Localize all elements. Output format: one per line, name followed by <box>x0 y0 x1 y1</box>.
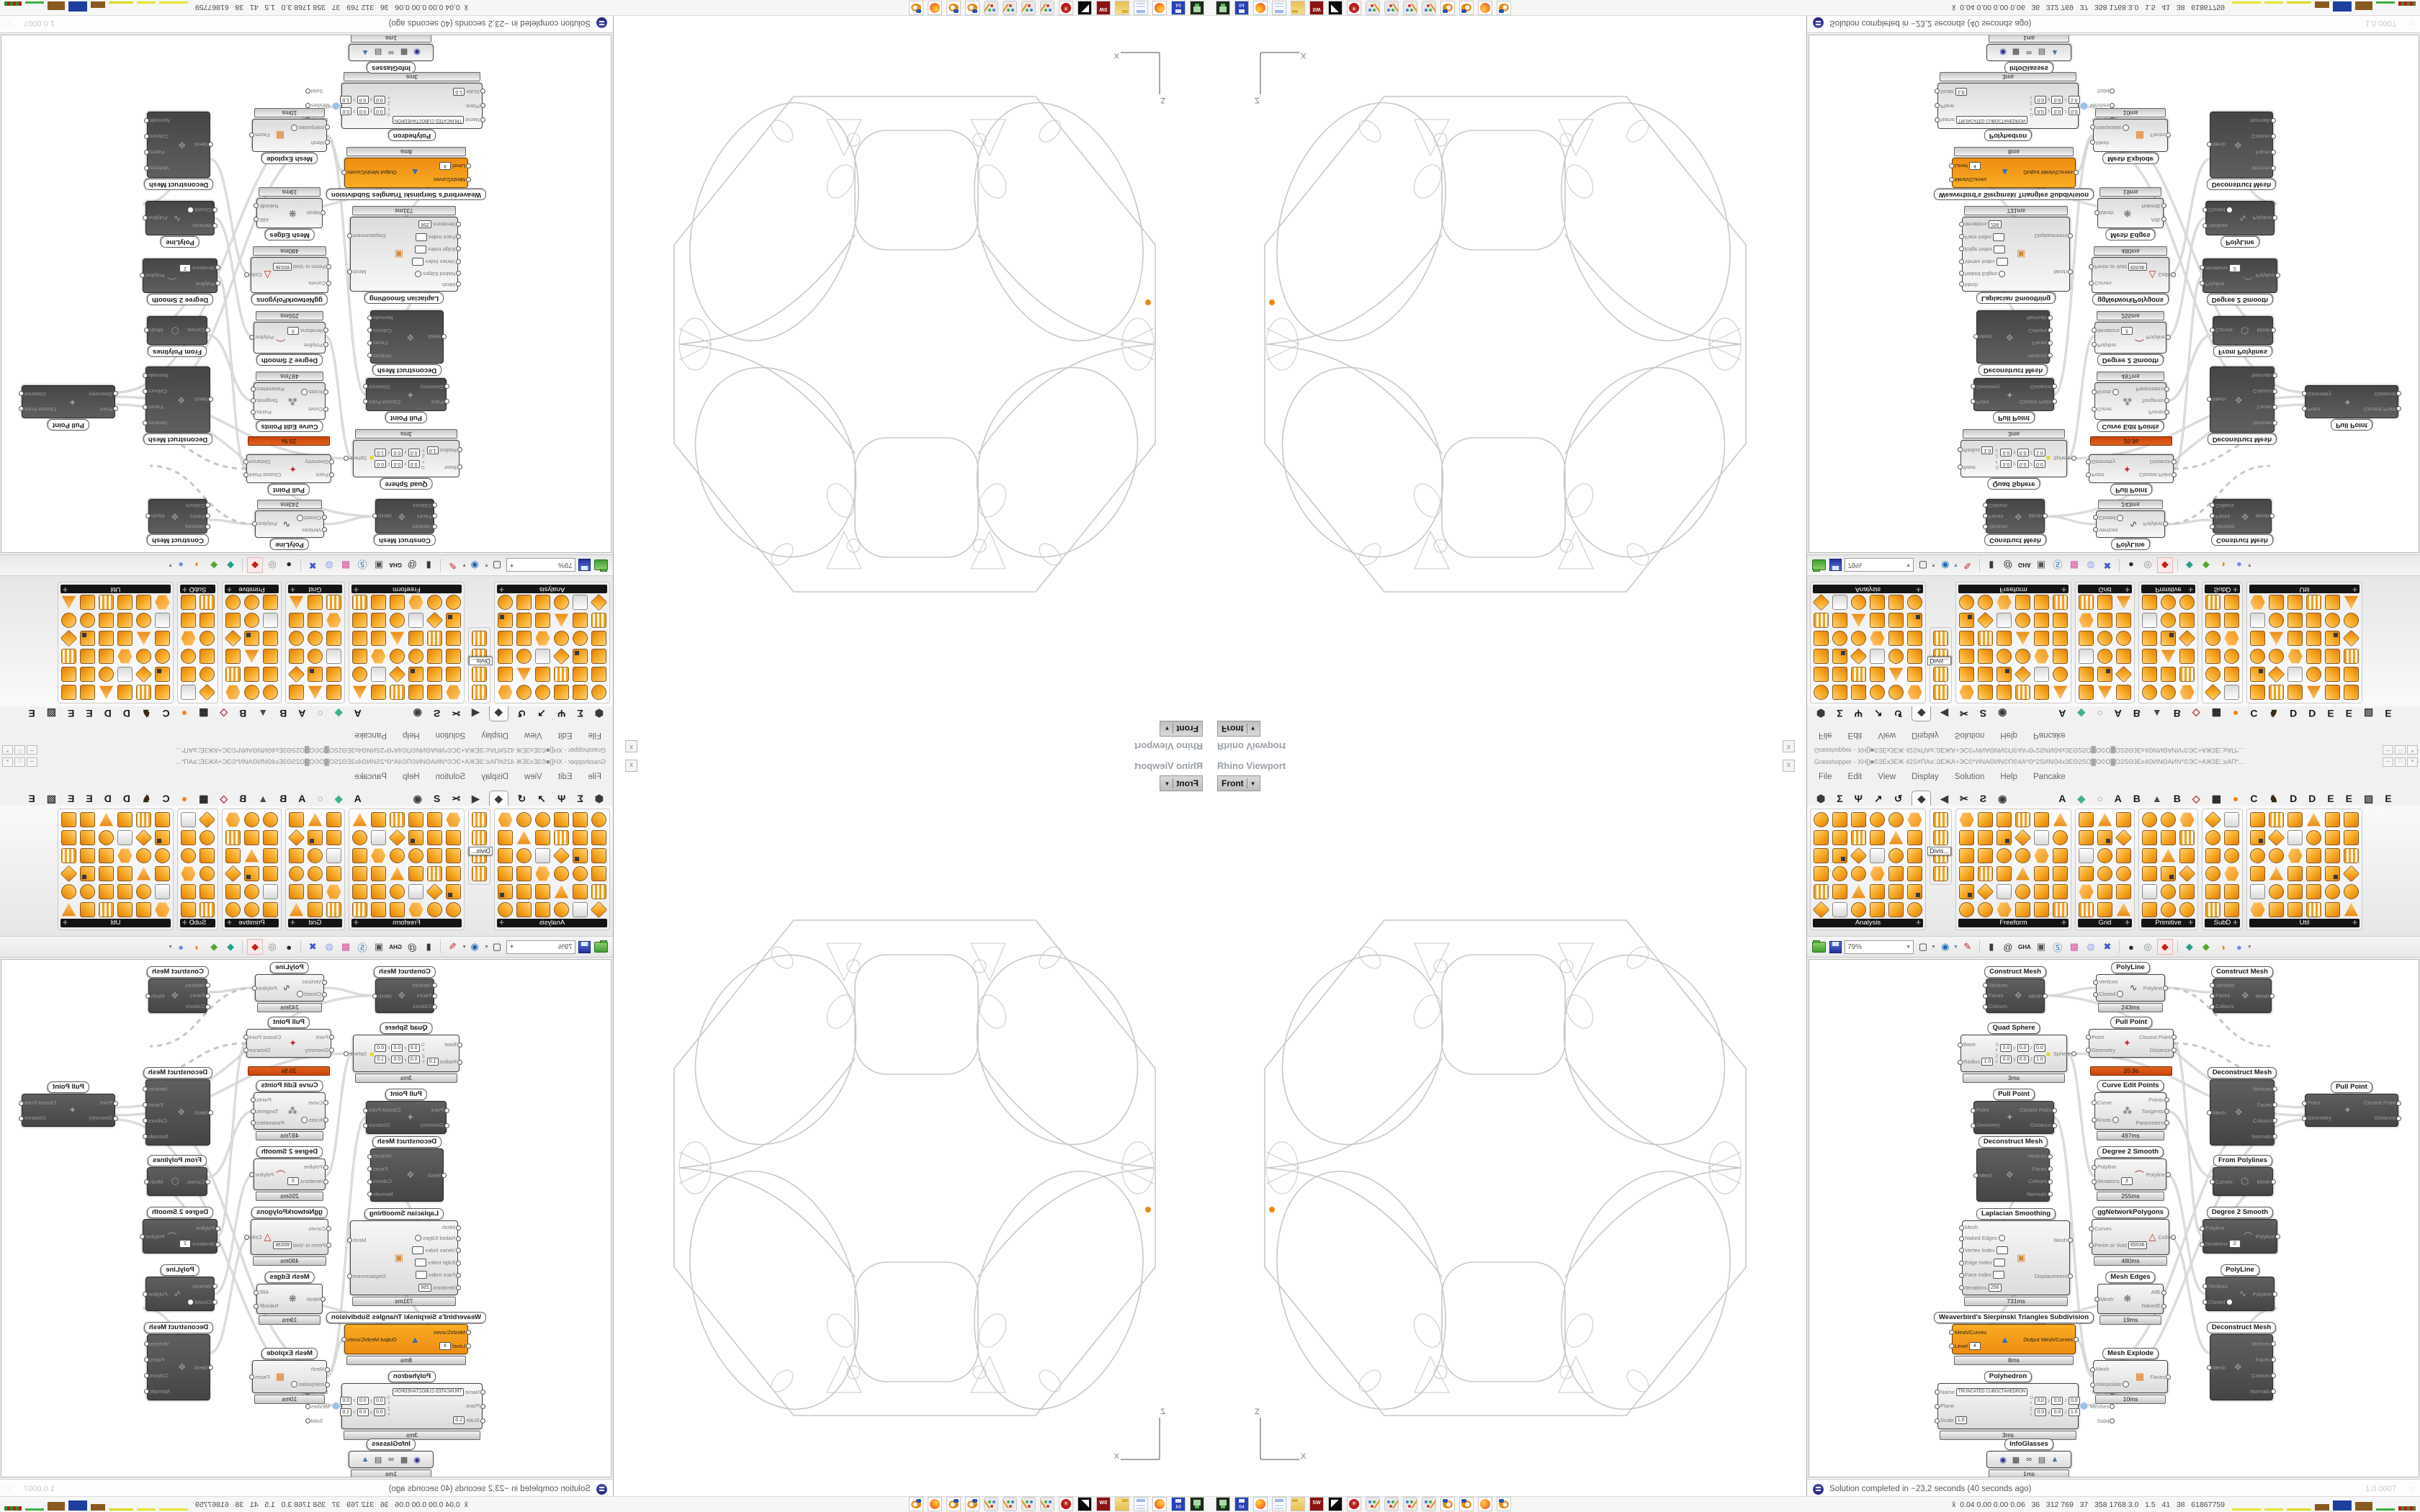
tab-plugin[interactable]: ◆ <box>333 706 345 721</box>
firefox-icon[interactable] <box>1478 1497 1492 1511</box>
gh-node-ggnetworkpolygons[interactable]: CurvesPerim or Void65536△Cells <box>251 257 328 293</box>
component-icon[interactable] <box>2344 830 2359 845</box>
viewport-view-tab[interactable]: Front ▼ <box>1160 775 1203 791</box>
input-port[interactable]: Faces <box>1989 513 2008 520</box>
output-port[interactable]: Closest Point <box>2020 1107 2051 1113</box>
component-icon[interactable] <box>155 866 170 881</box>
component-icon[interactable] <box>99 812 114 827</box>
output-port[interactable]: Polyline <box>2146 1171 2165 1178</box>
component-icon[interactable] <box>2344 884 2359 899</box>
value-chip[interactable]: 1.0 <box>2069 1408 2080 1416</box>
output-port[interactable]: Output Mesh/Curves <box>2023 1336 2073 1343</box>
component-icon[interactable] <box>2079 649 2094 664</box>
component-icon[interactable] <box>80 631 95 646</box>
output-port[interactable]: Closest Point <box>249 472 281 479</box>
component-icon[interactable] <box>1832 884 1847 899</box>
component-icon[interactable] <box>591 830 606 845</box>
gh-node-pull-point[interactable]: PointGeometry✦Closest PointDistance <box>2089 1029 2174 1058</box>
gh-node-polyline[interactable]: VerticesClosed∿Polyline <box>2096 510 2165 538</box>
component-icon[interactable] <box>99 830 114 845</box>
value-chip[interactable]: TRUNCATED CUBOCTAHEDRON <box>1956 116 2027 124</box>
component-icon[interactable] <box>1907 595 1922 610</box>
close-icon[interactable]: × <box>2 757 13 767</box>
component-icon[interactable] <box>2053 812 2068 827</box>
input-port[interactable]: Iterations2 <box>2205 1240 2241 1248</box>
component-icon[interactable] <box>1996 595 2012 610</box>
input-port[interactable]: Vertices <box>2099 978 2123 985</box>
panel-footer-analysis[interactable]: Analysis✛ <box>497 585 607 593</box>
sphere-rings-icon[interactable]: ◎ <box>2141 558 2155 572</box>
output-port[interactable]: Normals <box>150 118 170 125</box>
output-port[interactable]: AllE <box>2151 1289 2161 1295</box>
component-icon[interactable] <box>80 613 95 628</box>
component-icon[interactable] <box>1870 902 1885 917</box>
component-icon[interactable] <box>2079 685 2094 700</box>
input-port[interactable]: Polyline <box>2097 1164 2133 1170</box>
component-icon[interactable] <box>446 667 461 682</box>
value-chip[interactable] <box>1996 1246 2008 1254</box>
component-icon[interactable] <box>2205 595 2220 610</box>
node-canvas[interactable]: Construct MeshVerticesFacesColours❖MeshQ… <box>1809 959 2419 1477</box>
component-icon[interactable] <box>117 866 133 881</box>
save-file-icon[interactable] <box>578 558 592 572</box>
menu-help[interactable]: Help <box>403 773 420 781</box>
component-icon[interactable] <box>2142 649 2157 664</box>
component-icon[interactable] <box>591 848 606 863</box>
component-icon[interactable] <box>535 667 550 682</box>
output-port[interactable]: Colours <box>2251 1372 2270 1379</box>
component-icon[interactable] <box>2205 631 2220 646</box>
component-icon[interactable] <box>1832 830 1847 845</box>
value-chip[interactable]: 1.0 <box>1955 1416 1967 1424</box>
component-icon[interactable] <box>1933 812 1948 827</box>
input-port[interactable]: NameTRUNCATED CUBOCTAHEDRON <box>393 1388 480 1396</box>
tab-params[interactable]: ⬢ <box>593 706 606 721</box>
component-icon[interactable] <box>2287 631 2303 646</box>
component-icon[interactable] <box>2306 884 2321 899</box>
value-chip[interactable]: 0.0 <box>2069 108 2080 116</box>
component-icon[interactable] <box>136 685 151 700</box>
gem-teal-icon[interactable]: ◆ <box>2182 558 2197 572</box>
tab-transform[interactable]: Ƨ <box>431 706 442 721</box>
component-icon[interactable] <box>1832 631 1847 646</box>
output-port[interactable]: Closest Point <box>2139 472 2171 479</box>
remote-at-icon[interactable]: @ <box>405 558 419 572</box>
component-icon[interactable] <box>199 684 216 701</box>
gha-icon[interactable]: GHA <box>2017 558 2032 572</box>
component-icon[interactable] <box>1870 812 1885 827</box>
component-icon[interactable] <box>244 830 259 845</box>
value-chip[interactable] <box>415 1259 426 1266</box>
component-icon[interactable] <box>155 685 170 700</box>
component-icon[interactable] <box>1959 812 1974 827</box>
component-icon[interactable] <box>80 667 95 682</box>
input-port[interactable]: Plane <box>1940 103 2027 109</box>
panel-expand-icon[interactable]: ✛ <box>2352 919 2357 927</box>
component-icon[interactable] <box>2161 595 2176 610</box>
component-icon[interactable] <box>2269 685 2284 700</box>
value-chip[interactable] <box>415 246 426 253</box>
output-port[interactable]: Polyline <box>148 215 167 222</box>
gh-node-construct-mesh[interactable]: VerticesFacesColours❖Mesh <box>375 978 434 1013</box>
input-port[interactable]: Closed <box>2208 1299 2233 1305</box>
component-icon[interactable] <box>263 685 278 700</box>
blender-icon[interactable] <box>1440 1497 1455 1511</box>
component-icon[interactable] <box>427 848 442 863</box>
component-icon[interactable] <box>516 631 532 646</box>
tab-plugin[interactable]: A <box>296 706 308 721</box>
component-icon[interactable] <box>573 830 588 845</box>
palette-icon[interactable] <box>1003 1497 1017 1511</box>
component-icon[interactable] <box>155 667 170 682</box>
component-icon[interactable] <box>244 685 259 700</box>
input-port[interactable]: Curves <box>2215 1179 2233 1185</box>
tab-intersect[interactable]: ✂ <box>449 791 462 806</box>
component-icon[interactable] <box>591 901 608 919</box>
palette-icon[interactable] <box>1021 1497 1036 1511</box>
component-icon[interactable] <box>225 685 241 700</box>
value-chip[interactable]: 1.0 <box>453 88 465 96</box>
input-port[interactable]: Level4 <box>1955 1342 1986 1350</box>
panel-footer-freeform[interactable]: Freeform✛ <box>351 585 462 593</box>
component-icon[interactable] <box>427 667 442 682</box>
component-icon[interactable] <box>2205 848 2220 863</box>
component-icon[interactable] <box>2034 631 2049 646</box>
component-icon[interactable] <box>2344 902 2359 917</box>
component-icon[interactable] <box>135 666 153 683</box>
component-icon[interactable] <box>2161 613 2176 628</box>
gh-node-pull-point[interactable]: PointGeometry✦Closest PointDistance <box>246 1029 331 1058</box>
component-icon[interactable] <box>446 812 461 827</box>
component-icon[interactable] <box>535 649 550 664</box>
gh-node-curve-edit-points[interactable]: CurveKnots⁂PointsTangentsParameters <box>2094 382 2166 420</box>
input-port[interactable]: Mesh <box>307 1296 320 1302</box>
input-port[interactable]: Mesh <box>2213 142 2226 148</box>
component-icon[interactable] <box>2325 631 2340 646</box>
component-icon[interactable] <box>2250 902 2265 917</box>
value-chip[interactable] <box>1993 233 2004 241</box>
minimize-icon[interactable]: — <box>2383 745 2393 755</box>
palette-icon[interactable] <box>1366 1497 1380 1511</box>
component-icon[interactable] <box>2224 667 2239 682</box>
component-icon[interactable] <box>2053 866 2068 881</box>
input-port[interactable]: Polyline <box>2205 1225 2241 1231</box>
output-port[interactable]: Mesh <box>2029 513 2042 520</box>
component-icon[interactable] <box>2015 829 2032 847</box>
output-port[interactable]: Distance <box>2375 1115 2396 1121</box>
component-icon[interactable] <box>2325 685 2340 700</box>
menu-solution[interactable]: Solution <box>436 773 466 781</box>
value-chip[interactable]: 1.0 <box>340 1408 351 1416</box>
output-port[interactable]: Faces <box>150 1356 164 1363</box>
input-port[interactable]: Colours <box>1989 1003 2008 1009</box>
tab-plugin[interactable]: ♞ <box>2267 706 2281 721</box>
component-icon[interactable] <box>1832 812 1847 827</box>
panel-expand-icon[interactable]: ✛ <box>499 919 504 927</box>
zoom-extents-icon[interactable]: ▢ <box>1916 558 1930 572</box>
component-icon[interactable] <box>244 848 259 863</box>
component-icon[interactable] <box>516 848 532 863</box>
infoglasses-icon[interactable]: ∞ <box>386 48 397 58</box>
component-icon[interactable] <box>352 812 367 827</box>
input-port[interactable]: Geometry <box>1976 384 2000 390</box>
input-port[interactable]: Vertices <box>185 523 205 530</box>
component-icon[interactable] <box>2116 884 2131 899</box>
value-chip[interactable]: 0.0 <box>340 108 351 116</box>
input-port[interactable]: Mesh <box>1965 282 2008 288</box>
preview-eye-icon[interactable]: ◉ <box>1938 558 1953 572</box>
value-chip[interactable]: 0.0 <box>2051 96 2063 104</box>
tab-vector[interactable]: ↗ <box>535 706 548 721</box>
panel-expand-icon[interactable]: ✛ <box>2125 585 2130 593</box>
input-port[interactable]: Level4 <box>1955 163 1986 171</box>
input-port[interactable]: Vertices <box>187 1283 212 1290</box>
component-icon[interactable] <box>2306 631 2321 646</box>
input-port[interactable]: Iterations2 <box>2205 264 2241 272</box>
component-icon[interactable] <box>1814 884 1829 899</box>
tab-plugin[interactable]: A <box>2056 791 2068 806</box>
component-icon[interactable] <box>1933 866 1948 881</box>
panel-footer-subd[interactable]: SubD✛ <box>180 919 215 927</box>
floppy-64-icon[interactable] <box>1234 1497 1249 1511</box>
component-icon[interactable] <box>2287 866 2303 881</box>
palette-icon[interactable] <box>1384 1 1399 15</box>
component-icon[interactable] <box>427 902 442 917</box>
input-port[interactable]: Iterations2 <box>179 264 215 272</box>
component-icon[interactable] <box>371 685 386 700</box>
value-chip[interactable]: 1.0 <box>2034 449 2045 457</box>
output-port[interactable]: Faces <box>373 1166 387 1172</box>
panel-expand-icon[interactable]: ✛ <box>2061 585 2066 593</box>
output-port[interactable]: Normals <box>2251 1133 2272 1140</box>
component-icon[interactable] <box>289 902 304 917</box>
component-icon[interactable] <box>408 848 423 863</box>
window-icon[interactable]: ▣ <box>372 558 386 572</box>
output-port[interactable]: NakedE <box>259 1302 279 1309</box>
input-port[interactable]: Vertices <box>297 978 321 985</box>
value-chip[interactable]: 256 <box>1989 220 2002 228</box>
component-icon[interactable] <box>1870 685 1885 700</box>
input-port[interactable]: Vertex Index <box>412 258 455 266</box>
component-icon[interactable] <box>2269 884 2284 899</box>
component-icon[interactable] <box>1870 848 1885 863</box>
value-chip[interactable]: 0.0 <box>2017 449 2029 457</box>
component-icon[interactable] <box>2116 595 2131 610</box>
input-port[interactable]: Closed <box>2099 515 2123 521</box>
gh-node-construct-mesh[interactable]: VerticesFacesColours❖Mesh <box>375 499 434 534</box>
component-icon[interactable] <box>2079 866 2094 881</box>
resize-grip[interactable]: ∷ <box>5 1485 10 1493</box>
component-icon[interactable] <box>136 902 151 917</box>
component-icon[interactable] <box>1888 902 1904 917</box>
output-port[interactable]: Polyline <box>145 273 164 279</box>
caret[interactable]: ▼ <box>462 945 467 950</box>
output-port[interactable]: Vertices <box>2252 420 2272 427</box>
menu-display[interactable]: Display <box>481 732 508 740</box>
palette-icon[interactable] <box>1403 1497 1417 1511</box>
barrel-icon[interactable]: ▮ <box>421 558 436 572</box>
input-port[interactable]: Point <box>420 399 444 405</box>
toggle-port[interactable] <box>415 271 421 277</box>
output-port[interactable]: Distance <box>249 1047 270 1053</box>
zoom-combo[interactable]: 79%▼ <box>506 559 575 572</box>
component-icon[interactable] <box>61 685 76 700</box>
toggle-port[interactable] <box>2123 125 2129 131</box>
output-port[interactable]: Colours <box>2028 328 2047 334</box>
component-icon[interactable] <box>1907 812 1922 827</box>
bw-app-icon[interactable] <box>1077 1 1092 15</box>
infoglasses-icon[interactable]: ▲ <box>360 48 371 58</box>
component-icon[interactable] <box>535 595 550 610</box>
tab-plugin[interactable]: A <box>2112 706 2124 721</box>
component-icon[interactable] <box>2205 649 2220 664</box>
menu-view[interactable]: View <box>1878 732 1896 740</box>
component-icon[interactable] <box>289 884 304 899</box>
value-chip[interactable]: 0.0 <box>2017 1044 2029 1052</box>
gh-node-quad-sphere[interactable]: BaseRadius1.0O x0.0y0.0z0.0Z x0.0y0.0z1.… <box>353 440 460 477</box>
component-icon[interactable] <box>1959 830 1974 845</box>
input-port[interactable]: Interpolate <box>291 125 324 131</box>
zoom-combo[interactable]: 79%▼ <box>506 940 575 954</box>
sketch-pen-icon[interactable]: ✎ <box>1960 558 1975 572</box>
gh-node-degree-2-smooth[interactable]: PolylineIterations2⌒Polyline <box>143 258 218 293</box>
component-icon[interactable] <box>390 812 405 827</box>
input-port[interactable]: Geometry <box>305 1047 328 1053</box>
component-icon[interactable] <box>289 812 304 827</box>
component-icon[interactable] <box>2161 848 2176 863</box>
blender-icon[interactable] <box>1459 1 1474 15</box>
value-chip[interactable]: 0.0 <box>408 1044 420 1052</box>
tab-surface[interactable]: ◆ <box>1912 791 1931 806</box>
component-icon[interactable] <box>2097 685 2112 700</box>
search-s-icon[interactable]: Ⓢ <box>2051 940 2065 954</box>
value-chip[interactable]: 0.0 <box>2000 461 2012 469</box>
sphere-rings-icon[interactable]: ◎ <box>2141 940 2155 954</box>
toggle-port[interactable] <box>2123 1381 2129 1387</box>
tab-plugin[interactable]: B <box>277 791 289 806</box>
value-chip[interactable] <box>1994 1259 2005 1266</box>
gh-node-degree-2-smooth[interactable]: PolylineIterations2⌒Polyline <box>2202 1219 2277 1254</box>
output-port[interactable]: Points <box>2148 410 2164 416</box>
component-icon[interactable] <box>2053 631 2068 646</box>
component-icon[interactable] <box>352 667 367 682</box>
gh-node-pull-point[interactable]: PointGeometry✦Closest PointDistance <box>22 385 115 418</box>
firefox-icon[interactable] <box>1478 1 1492 15</box>
component-icon[interactable] <box>1996 613 2012 628</box>
output-port[interactable]: Faces <box>2151 132 2165 139</box>
component-icon[interactable] <box>1978 631 1993 646</box>
component-icon[interactable] <box>1959 902 1974 917</box>
zoom-extents-icon[interactable]: ▢ <box>490 940 504 954</box>
red-box-icon[interactable] <box>1309 1 1324 15</box>
tab-plugin[interactable]: ● <box>2231 706 2241 721</box>
tab-plugin[interactable]: ● <box>179 791 189 806</box>
component-icon[interactable] <box>1959 685 1974 700</box>
component-icon[interactable] <box>1851 866 1866 881</box>
input-port[interactable]: Vertices <box>1989 982 2008 989</box>
component-icon[interactable] <box>390 595 405 610</box>
output-port[interactable]: Colours <box>148 389 167 395</box>
red-gear-icon[interactable] <box>1059 1497 1073 1511</box>
infoglasses-icon[interactable]: ▲ <box>2050 1454 2061 1465</box>
input-port[interactable]: Mesh <box>412 282 455 288</box>
component-icon[interactable] <box>308 595 323 610</box>
open-file-icon[interactable] <box>594 558 609 572</box>
output-port[interactable]: Output Mesh/Curves <box>347 1336 397 1343</box>
input-port[interactable]: Knots <box>2097 390 2119 396</box>
component-icon[interactable] <box>554 884 569 899</box>
tab-surface[interactable]: ◆ <box>489 791 508 806</box>
component-icon[interactable] <box>263 631 278 646</box>
component-icon[interactable] <box>446 685 461 700</box>
component-icon[interactable] <box>1907 667 1922 682</box>
component-icon[interactable] <box>117 902 133 917</box>
output-port[interactable]: Faces <box>2257 405 2272 411</box>
component-icon[interactable] <box>573 902 588 917</box>
minimize-icon[interactable]: — <box>27 757 37 767</box>
component-icon[interactable] <box>136 649 151 664</box>
maximize-icon[interactable]: □ <box>14 745 25 755</box>
input-port[interactable]: Curve <box>301 407 323 413</box>
component-icon[interactable] <box>408 866 423 881</box>
component-icon[interactable] <box>2205 884 2220 899</box>
input-port[interactable]: Point <box>1976 1107 2000 1113</box>
component-icon[interactable] <box>2115 666 2133 683</box>
input-port[interactable]: Vertices <box>2208 223 2233 230</box>
input-port[interactable]: Base <box>427 464 457 471</box>
component-icon[interactable] <box>2161 866 2176 881</box>
gh-node-ggnetworkpolygons[interactable]: CurvesPerim or Void65536△Cells <box>2092 257 2169 293</box>
input-port[interactable]: Edge Index <box>412 1259 455 1266</box>
input-port[interactable]: Curves <box>187 328 205 334</box>
tab-plugin[interactable]: ● <box>2231 791 2241 806</box>
panel-expand-icon[interactable]: ✛ <box>2125 919 2130 927</box>
folder-icon[interactable] <box>1291 1497 1305 1511</box>
component-icon[interactable] <box>61 884 76 899</box>
component-icon[interactable] <box>2097 613 2112 628</box>
component-icon[interactable] <box>326 667 341 682</box>
tab-plugin[interactable]: ▦ <box>197 706 210 721</box>
open-file-icon[interactable] <box>1811 558 1826 572</box>
component-icon[interactable] <box>225 848 241 863</box>
gh-node-deconstruct-mesh[interactable]: Mesh❖VerticesFacesColoursNormals <box>145 366 210 433</box>
output-port[interactable]: Faces <box>150 150 164 156</box>
component-icon[interactable] <box>1996 649 2012 664</box>
value-chip[interactable] <box>412 258 423 266</box>
output-port[interactable]: Distance <box>249 459 270 466</box>
component-icon[interactable] <box>308 685 323 700</box>
menu-pancake[interactable]: Pancake <box>354 773 387 781</box>
gh-node-degree-2-smooth[interactable]: PolylineIterations3⌒Polyline <box>2094 1158 2166 1190</box>
component-icon[interactable] <box>2097 812 2112 827</box>
component-icon[interactable] <box>498 667 513 682</box>
component-icon[interactable] <box>2306 613 2321 628</box>
output-port[interactable]: Distance <box>24 1115 45 1121</box>
component-icon[interactable] <box>80 902 95 917</box>
output-port[interactable]: NakedE <box>2141 1302 2161 1309</box>
floppy-64-icon[interactable] <box>1171 1 1186 15</box>
output-port[interactable]: Vertices <box>2027 1153 2047 1159</box>
component-icon[interactable] <box>2205 830 2220 845</box>
component-icon[interactable] <box>80 830 95 845</box>
toggle-port[interactable] <box>187 1299 194 1305</box>
component-icon[interactable] <box>263 812 278 827</box>
value-chip[interactable]: 1.0 <box>453 1416 465 1424</box>
menu-view[interactable]: View <box>1878 773 1896 781</box>
value-chip[interactable]: 0.0 <box>357 1397 369 1405</box>
toggle-port[interactable] <box>1999 1235 2005 1241</box>
component-icon[interactable] <box>1832 902 1847 917</box>
